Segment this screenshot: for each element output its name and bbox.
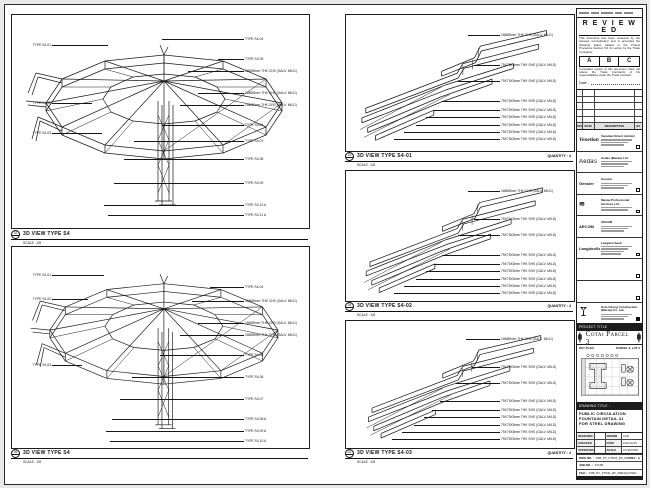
view-title: 3D VIEW TYPE S4-02 bbox=[357, 303, 412, 309]
revision-row bbox=[577, 102, 642, 109]
revision-row bbox=[577, 96, 642, 103]
scale-label: SCALE : 1/8 bbox=[357, 163, 375, 167]
review-checkbox bbox=[636, 145, 640, 149]
title-underline bbox=[345, 458, 573, 459]
view-title: 3D VIEW TYPE S4 bbox=[23, 450, 70, 456]
title-underline bbox=[11, 239, 308, 240]
drawing-sheet: TYPE S4-01TYPE S4-02TYPE S4-03TYPE S4-04… bbox=[4, 4, 647, 485]
title-block-footer-strip bbox=[577, 476, 642, 479]
reviewed-stamp: R E V I E W E D This document has been r… bbox=[577, 18, 642, 90]
consultant-row: AECOMAECOM bbox=[577, 216, 642, 238]
view-title: 3D VIEW TYPE S4-03 bbox=[357, 450, 412, 456]
doc-info-row: JOB NO. :3712B bbox=[577, 461, 642, 469]
stamp-header-strip bbox=[577, 9, 642, 18]
quantity-label: QUANTITY : 4 bbox=[548, 451, 572, 455]
drawing-title: PUBLIC CIRCULATION FOUNTAIN DETAIL 31 FO… bbox=[577, 410, 642, 433]
panel-3d-view-type-s4-01: 168Ø8mm THK CHS (GALV. MILD)75X75X5mm TH… bbox=[345, 14, 575, 152]
revision-row bbox=[577, 116, 642, 123]
panel-3d-view-type-s4-bottom: TYPE S4-01TYPE S4-02TYPE S4-03TYPE S4-04… bbox=[11, 246, 310, 449]
title-block: R E V I E W E D This document has been r… bbox=[576, 8, 643, 480]
review-checkbox bbox=[636, 317, 640, 321]
stamp-paragraph-1: This document has been reviewed by the r… bbox=[579, 37, 640, 54]
consultant-name: AECOM bbox=[601, 221, 640, 224]
consultant-logo: AECOM bbox=[579, 224, 600, 229]
review-checkbox bbox=[636, 296, 640, 300]
consultant-name: Langdon Seah bbox=[601, 242, 640, 245]
revision-header-row: REVDATEDESCRIPTIONBY bbox=[577, 122, 642, 129]
view-title: 3D VIEW TYPE S4-01 bbox=[357, 153, 412, 159]
consultant-logo bbox=[579, 306, 600, 319]
approvals-row: CHECKED-DATE14/AUG/15 bbox=[577, 439, 642, 446]
grade-c: C bbox=[619, 57, 639, 66]
consultant-row: GenslerGensler bbox=[577, 173, 642, 195]
stamp-date-row: Date : bbox=[579, 80, 640, 85]
consultant-name: Hsin Chong Construction (Macau) Co. Ltd. bbox=[601, 306, 640, 313]
doc-info-row: FILE :P3B_PC_FTD31_RF_M004(A).DWG bbox=[577, 469, 642, 477]
date-label: Date : bbox=[579, 81, 589, 85]
consultant-row: Hsin Chong Construction (Macau) Co. Ltd. bbox=[577, 303, 642, 324]
consultant-row: VenetianVenetian Orient Limited bbox=[577, 130, 642, 152]
panel-title-left-top: 22 3D VIEW TYPE S4 SCALE : 1/8 bbox=[11, 230, 308, 246]
approvals-row: APPROVED-SCALEAS SHOWN bbox=[577, 446, 642, 453]
approvals-row: DESIGNED-DRAWNCAD bbox=[577, 433, 642, 440]
consultant-name: Gensler bbox=[601, 178, 640, 181]
consultant-row: LangdonSeahLangdon Seah bbox=[577, 238, 642, 260]
consultant-sign-off-list: VenetianVenetian Orient LimitedAedasAeda… bbox=[577, 130, 642, 324]
consultant-logo: ≋ bbox=[579, 202, 600, 208]
umbrella-structure-drawing bbox=[12, 247, 309, 448]
scale-label: SCALE : 1/8 bbox=[23, 460, 41, 464]
consultant-row: ≋Macau Professional Services Ltd. bbox=[577, 195, 642, 217]
title-underline bbox=[345, 311, 573, 312]
review-checkbox bbox=[636, 253, 640, 257]
consultant-row bbox=[577, 281, 642, 303]
umbrella-structure-drawing bbox=[12, 15, 309, 228]
lantern-icon bbox=[577, 332, 583, 343]
panel-title-mid-bottom: 25 3D VIEW TYPE S4-03 QUANTITY : 4 SCALE… bbox=[345, 449, 573, 465]
consultant-name: Macau Professional Services Ltd. bbox=[601, 199, 640, 206]
review-grade-row: A B C bbox=[579, 56, 640, 67]
title-underline bbox=[11, 458, 308, 459]
panel-3d-view-type-s4-03: 168Ø8mm THK CHS (GALV. MILD)75X75X5mm TH… bbox=[345, 320, 575, 449]
review-checkbox bbox=[636, 188, 640, 192]
scale-label: SCALE : 1/8 bbox=[357, 460, 375, 464]
revision-row bbox=[577, 109, 642, 116]
consultant-logo: Venetian bbox=[579, 137, 600, 143]
title-underline bbox=[345, 161, 573, 162]
consultant-logo: Aedas bbox=[579, 159, 600, 165]
scale-label: SCALE : 1/8 bbox=[23, 241, 41, 245]
panel-3d-view-type-s4-top: TYPE S4-01TYPE S4-02TYPE S4-03TYPE S4-04… bbox=[11, 14, 310, 229]
tube-assembly-drawing bbox=[346, 171, 574, 301]
panel-title-mid-top: 23 3D VIEW TYPE S4-01 QUANTITY : 4 SCALE… bbox=[345, 152, 573, 168]
consultant-name: Aedas (Macau) Ltd. bbox=[601, 157, 640, 160]
doc-info-row: DWG NO. :P3B_PC_FTD31_RF_M004REV : A bbox=[577, 454, 642, 462]
project-name-row: Cotai Parcel 3 bbox=[577, 331, 642, 345]
reviewed-title: R E V I E W E D bbox=[579, 19, 640, 36]
quantity-label: QUANTITY : 4 bbox=[548, 304, 572, 308]
review-checkbox bbox=[636, 274, 640, 278]
panel-3d-view-type-s4-02: 168Ø8mm THK CHS (GALV. MILD)75X75X5mm TH… bbox=[345, 170, 575, 302]
review-checkbox bbox=[636, 210, 640, 214]
drawing-title-bar: DRAWING TITLE : bbox=[577, 403, 642, 410]
panel-title-mid-middle: 24 3D VIEW TYPE S4-02 QUANTITY : 4 SCALE… bbox=[345, 302, 573, 318]
consultant-name: Venetian Orient Limited bbox=[601, 135, 640, 138]
approvals-table: DESIGNED-DRAWNCADCHECKED-DATE14/AUG/15AP… bbox=[577, 433, 642, 454]
lantern-icon bbox=[636, 332, 642, 343]
consultant-row bbox=[577, 259, 642, 281]
tube-assembly-drawing bbox=[346, 321, 574, 448]
panel-title-left-bottom: 26 3D VIEW TYPE S4 SCALE : 1/8 bbox=[11, 449, 308, 465]
key-plan-map bbox=[580, 353, 640, 397]
quantity-label: QUANTITY : 4 bbox=[548, 154, 572, 158]
key-plan: KEY PLAN PARCEL 3, LOT 2 bbox=[577, 345, 642, 403]
date-fill-line bbox=[591, 80, 640, 85]
consultant-logo: Gensler bbox=[579, 181, 600, 186]
stamp-paragraph-2: Consultant review of this document does … bbox=[579, 68, 640, 78]
project-name: Cotai Parcel 3 bbox=[586, 330, 633, 346]
document-number-block: DWG NO. :P3B_PC_FTD31_RF_M004REV : AJOB … bbox=[577, 454, 642, 477]
consultant-logo: LangdonSeah bbox=[579, 246, 600, 251]
scale-label: SCALE : 1/8 bbox=[357, 313, 375, 317]
drawing-title-line-3: FOR STEEL DRAWING bbox=[579, 421, 640, 426]
view-title: 3D VIEW TYPE S4 bbox=[23, 231, 70, 237]
grade-a: A bbox=[580, 57, 600, 66]
grade-b: B bbox=[600, 57, 620, 66]
tube-assembly-drawing bbox=[346, 15, 574, 151]
consultant-row: AedasAedas (Macau) Ltd. bbox=[577, 152, 642, 174]
revision-table: REVDATEDESCRIPTIONBY bbox=[577, 90, 642, 130]
